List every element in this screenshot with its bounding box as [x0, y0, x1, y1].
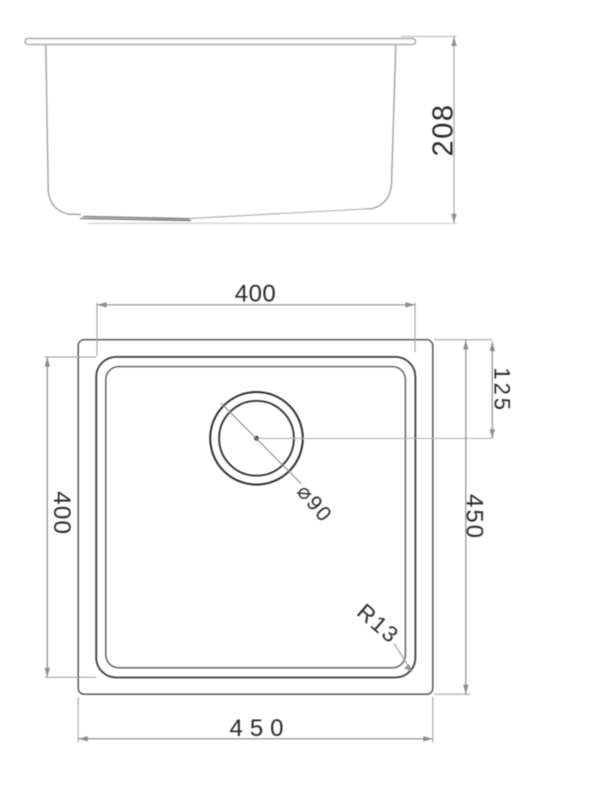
- svg-text:⌀90: ⌀90: [292, 480, 337, 527]
- svg-text:400: 400: [235, 281, 277, 308]
- svg-text:208: 208: [428, 104, 460, 157]
- svg-text:R13: R13: [352, 599, 404, 649]
- svg-text:125: 125: [490, 367, 515, 413]
- svg-text:450: 450: [229, 715, 290, 742]
- svg-text:400: 400: [48, 491, 75, 535]
- svg-text:450: 450: [461, 494, 488, 540]
